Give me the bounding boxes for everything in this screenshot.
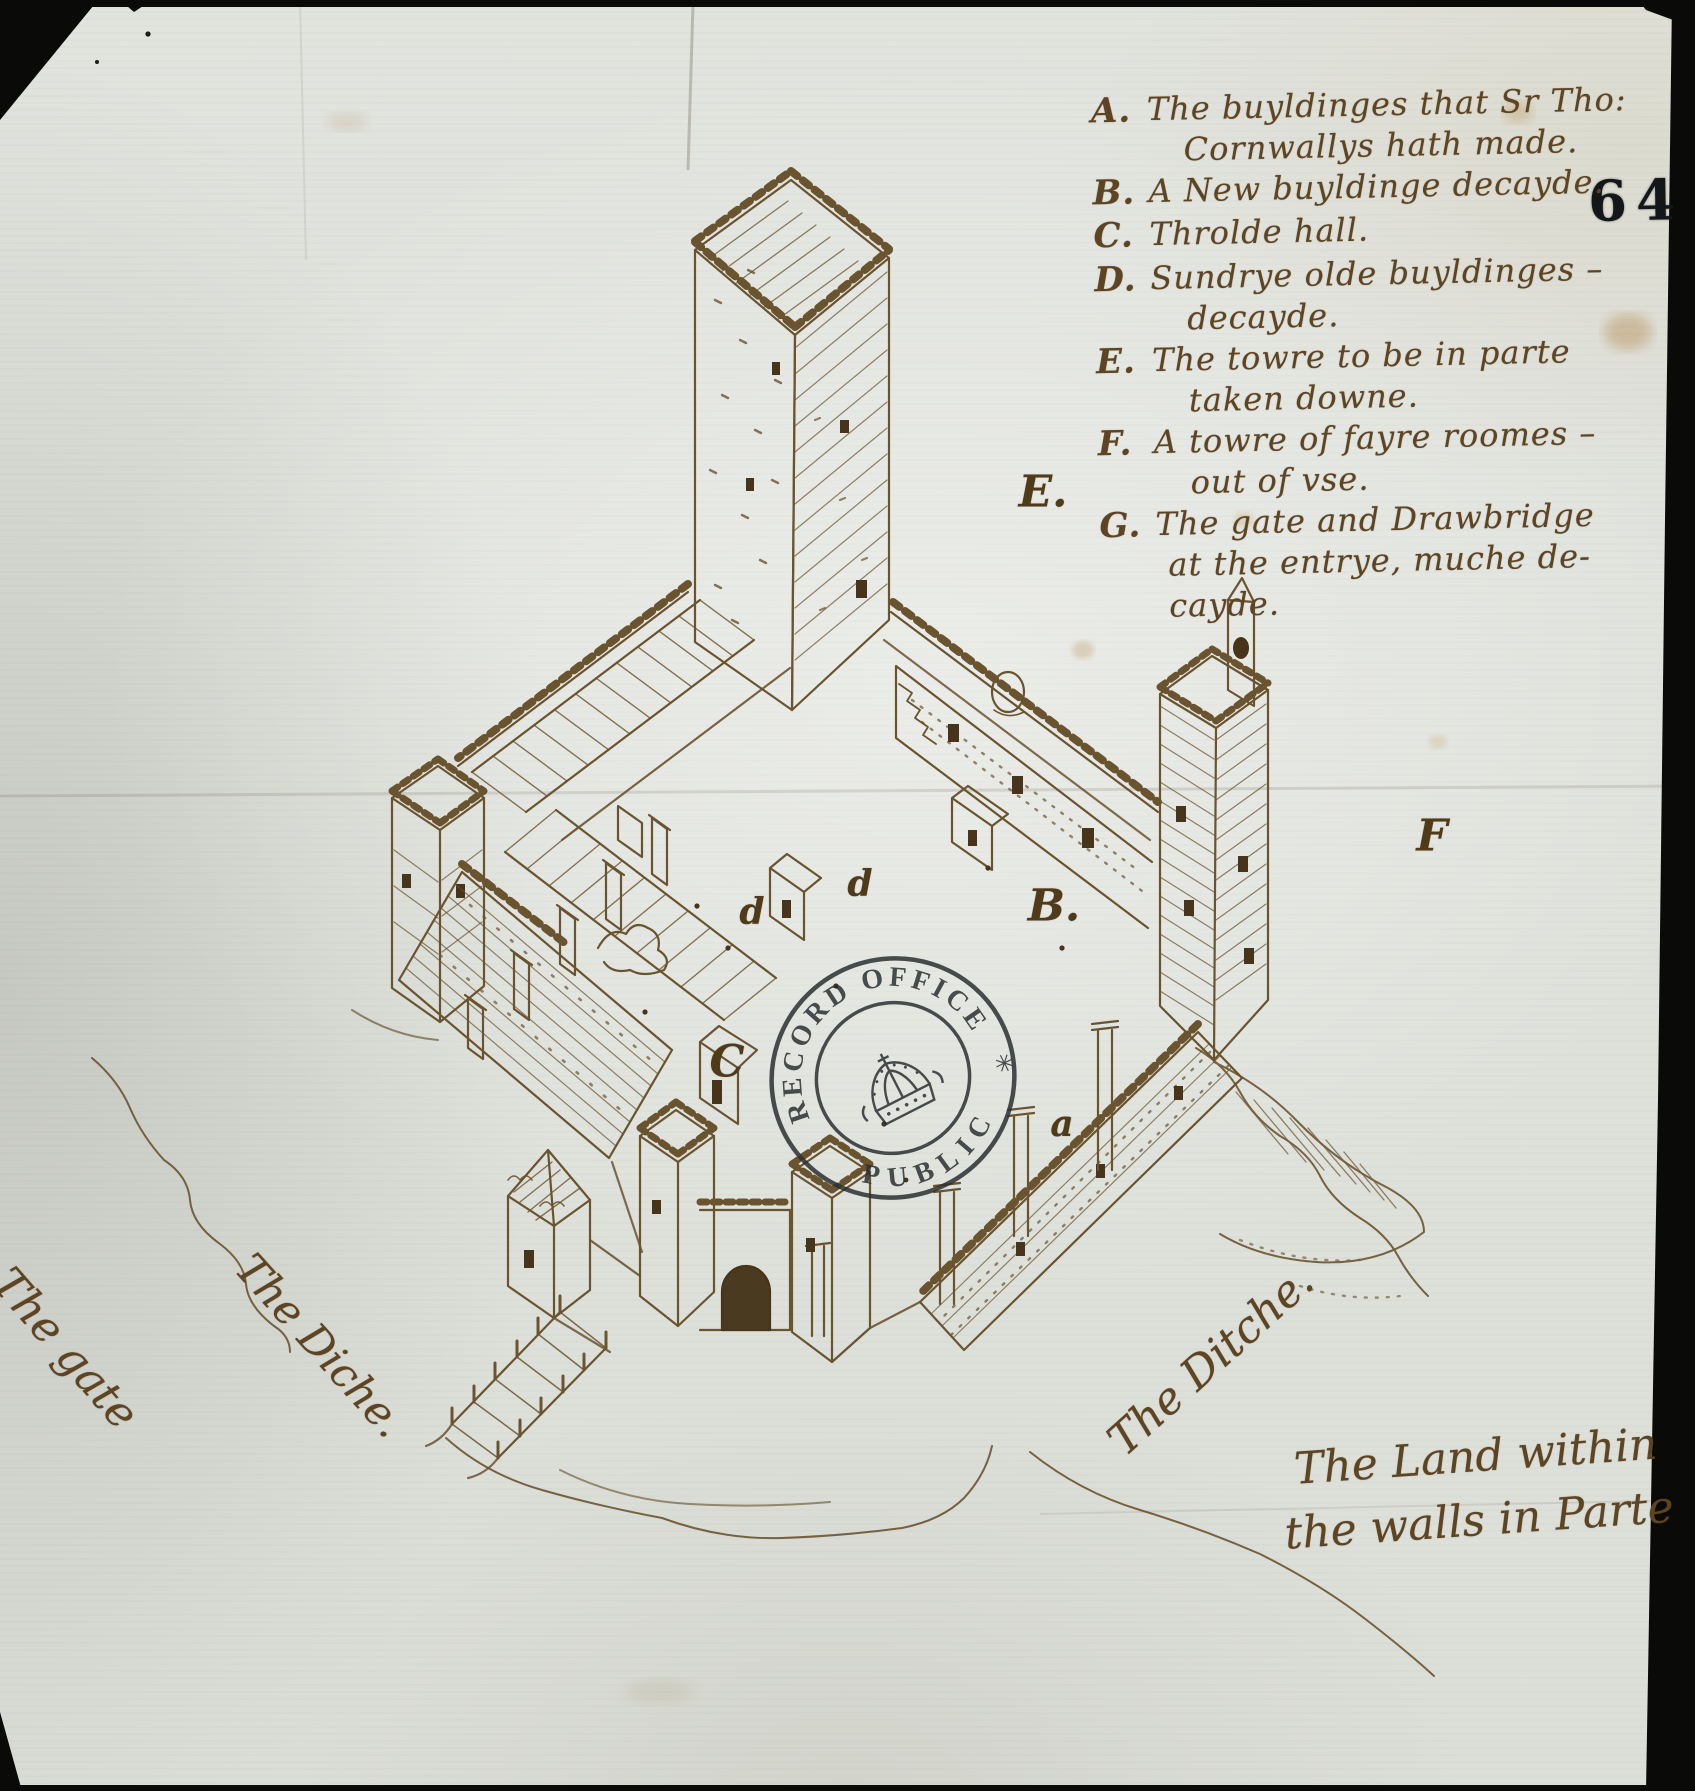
legend-line: A New buyldinge decayde. — [1148, 162, 1605, 212]
legend-line: The towre to be in parte — [1152, 331, 1571, 381]
plan-letter-d2: d — [847, 863, 872, 905]
southwest-wall — [399, 810, 776, 1252]
legend-key-a: A. — [1090, 89, 1147, 134]
legend-item-d: D. Sundrye olde buyldinges – decayde. — [1094, 247, 1695, 341]
legend-key-g: G. — [1099, 504, 1156, 549]
legend-key-d: D. — [1094, 258, 1151, 303]
plan-letter-c: C — [709, 1037, 744, 1088]
bridge — [426, 1296, 606, 1478]
northeast-wall — [884, 602, 1158, 928]
legend-key-e: E. — [1096, 340, 1153, 385]
legend-key-b: B. — [1092, 171, 1149, 216]
legend-item-f: F. A towre of fayre roomes – out of vse. — [1097, 410, 1695, 504]
plan-letter-a: a — [1050, 1103, 1073, 1145]
record-office-stamp: RECORD OFFICE PUBLIC ✳ — [730, 917, 1055, 1240]
stamp-text-bottom: PUBLIC — [849, 1094, 1017, 1217]
label-land-within-walls: The Land within the walls in Parte — [1292, 1412, 1676, 1565]
keep-tower — [695, 171, 889, 710]
legend-key-c: C. — [1093, 215, 1150, 260]
plan-letter-e: E. — [1019, 467, 1068, 518]
manuscript-sheet: RECORD OFFICE PUBLIC ✳ — [0, 0, 1695, 1791]
west-tower — [392, 759, 484, 1022]
plan-letter-f: F — [1416, 811, 1447, 862]
legend-item-g: G. The gate and Drawbridge at the entrye… — [1099, 492, 1695, 627]
plan-letter-d1: d — [739, 891, 764, 933]
plan-letter-b: B. — [1028, 881, 1081, 932]
stamp-crown-icon — [842, 1034, 949, 1131]
east-tower — [1160, 578, 1268, 1060]
gatehouse — [508, 1102, 920, 1362]
legend: A. The buyldinges that Sr Tho: Cornwally… — [1090, 78, 1695, 628]
northwest-range — [458, 584, 790, 840]
legend-item-e: E. The towre to be in parte taken downe. — [1096, 329, 1695, 423]
legend-item-a: A. The buyldinges that Sr Tho: Cornwally… — [1090, 78, 1692, 172]
svg-text:PUBLIC: PUBLIC — [849, 1094, 1017, 1217]
legend-key-f: F. — [1097, 422, 1154, 467]
legend-line: Throlde hall. — [1149, 210, 1369, 256]
